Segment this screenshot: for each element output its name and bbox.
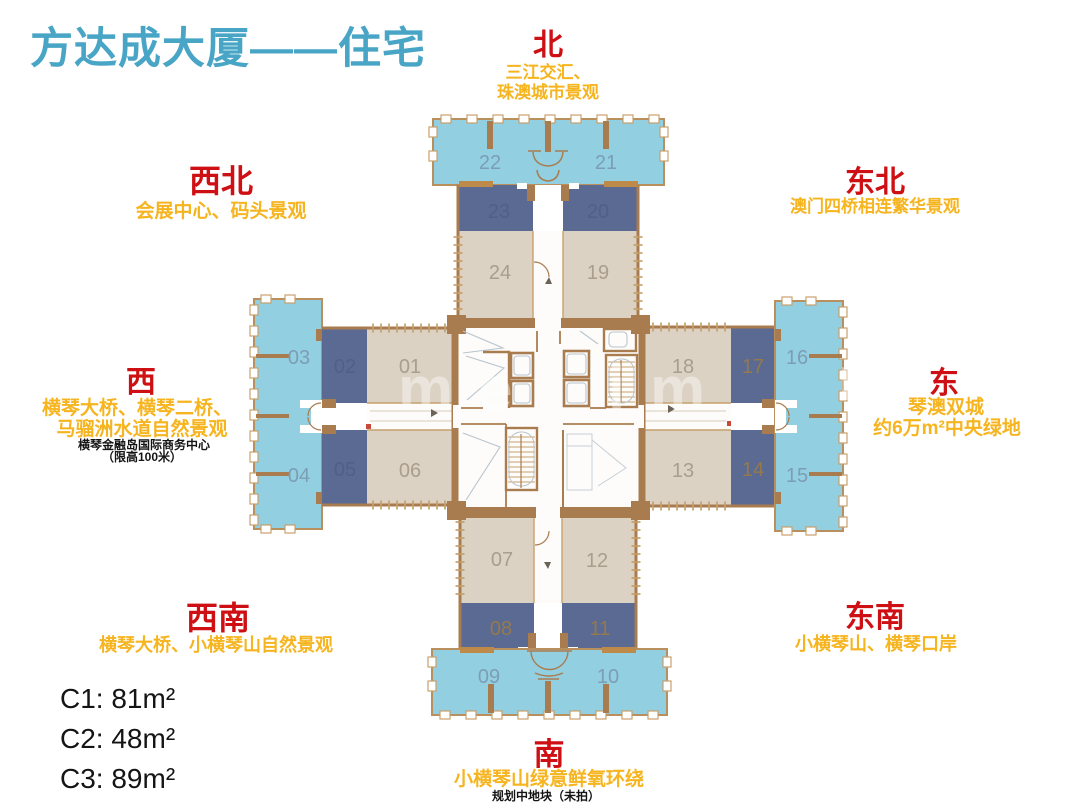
svg-text:i: i <box>608 355 625 424</box>
svg-text:11: 11 <box>590 618 611 640</box>
svg-text:07: 07 <box>491 549 513 571</box>
svg-text:06: 06 <box>399 460 421 482</box>
svg-text:19: 19 <box>587 262 609 284</box>
svg-text:23: 23 <box>488 201 510 223</box>
svg-text:12: 12 <box>586 550 608 572</box>
svg-text:m: m <box>838 345 893 414</box>
svg-text:05: 05 <box>334 459 356 481</box>
svg-text:20: 20 <box>587 201 609 223</box>
svg-text:17: 17 <box>742 356 764 378</box>
svg-text:09: 09 <box>478 666 500 688</box>
svg-text:e: e <box>478 355 512 424</box>
svg-text:03: 03 <box>288 347 310 369</box>
svg-text:m: m <box>650 355 705 424</box>
svg-text:16: 16 <box>786 347 808 369</box>
svg-text:m: m <box>398 355 453 424</box>
svg-text:22: 22 <box>479 152 501 174</box>
svg-text:08: 08 <box>490 618 512 640</box>
svg-text:10: 10 <box>597 666 619 688</box>
svg-text:14: 14 <box>742 459 764 481</box>
svg-text:15: 15 <box>786 465 808 487</box>
svg-text:04: 04 <box>288 465 310 487</box>
svg-text:21: 21 <box>595 152 617 174</box>
svg-text:24: 24 <box>489 262 511 284</box>
svg-text:13: 13 <box>672 460 694 482</box>
svg-text:02: 02 <box>334 356 356 378</box>
